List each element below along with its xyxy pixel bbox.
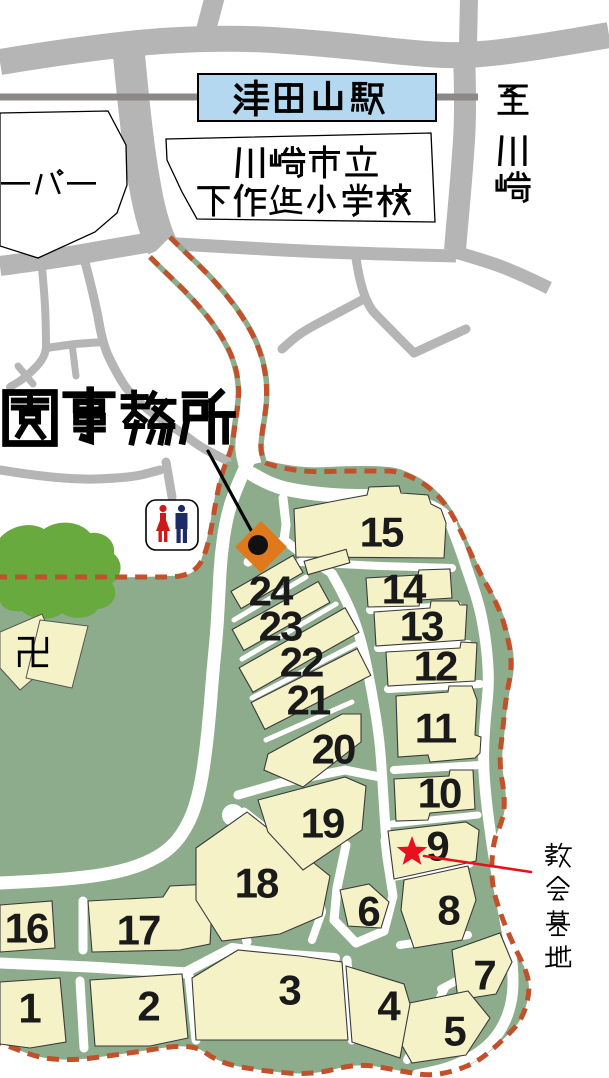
svg-text:2: 2 [137, 983, 159, 1030]
svg-text:19: 19 [301, 800, 344, 847]
svg-text:10: 10 [418, 770, 461, 817]
svg-text:18: 18 [235, 860, 279, 907]
svg-text:9: 9 [426, 823, 448, 870]
svg-text:15: 15 [360, 509, 404, 556]
svg-text:11: 11 [415, 705, 457, 752]
svg-text:8: 8 [437, 887, 460, 934]
svg-text:4: 4 [377, 983, 401, 1030]
svg-text:7: 7 [473, 952, 495, 999]
svg-text:20: 20 [312, 726, 355, 773]
svg-text:3: 3 [278, 967, 300, 1014]
svg-text:1: 1 [18, 985, 41, 1032]
svg-text:16: 16 [5, 905, 48, 952]
svg-text:12: 12 [414, 643, 457, 690]
svg-text:24: 24 [249, 568, 294, 615]
svg-text:5: 5 [443, 1008, 466, 1055]
svg-text:17: 17 [117, 907, 160, 954]
svg-text:6: 6 [357, 888, 379, 935]
